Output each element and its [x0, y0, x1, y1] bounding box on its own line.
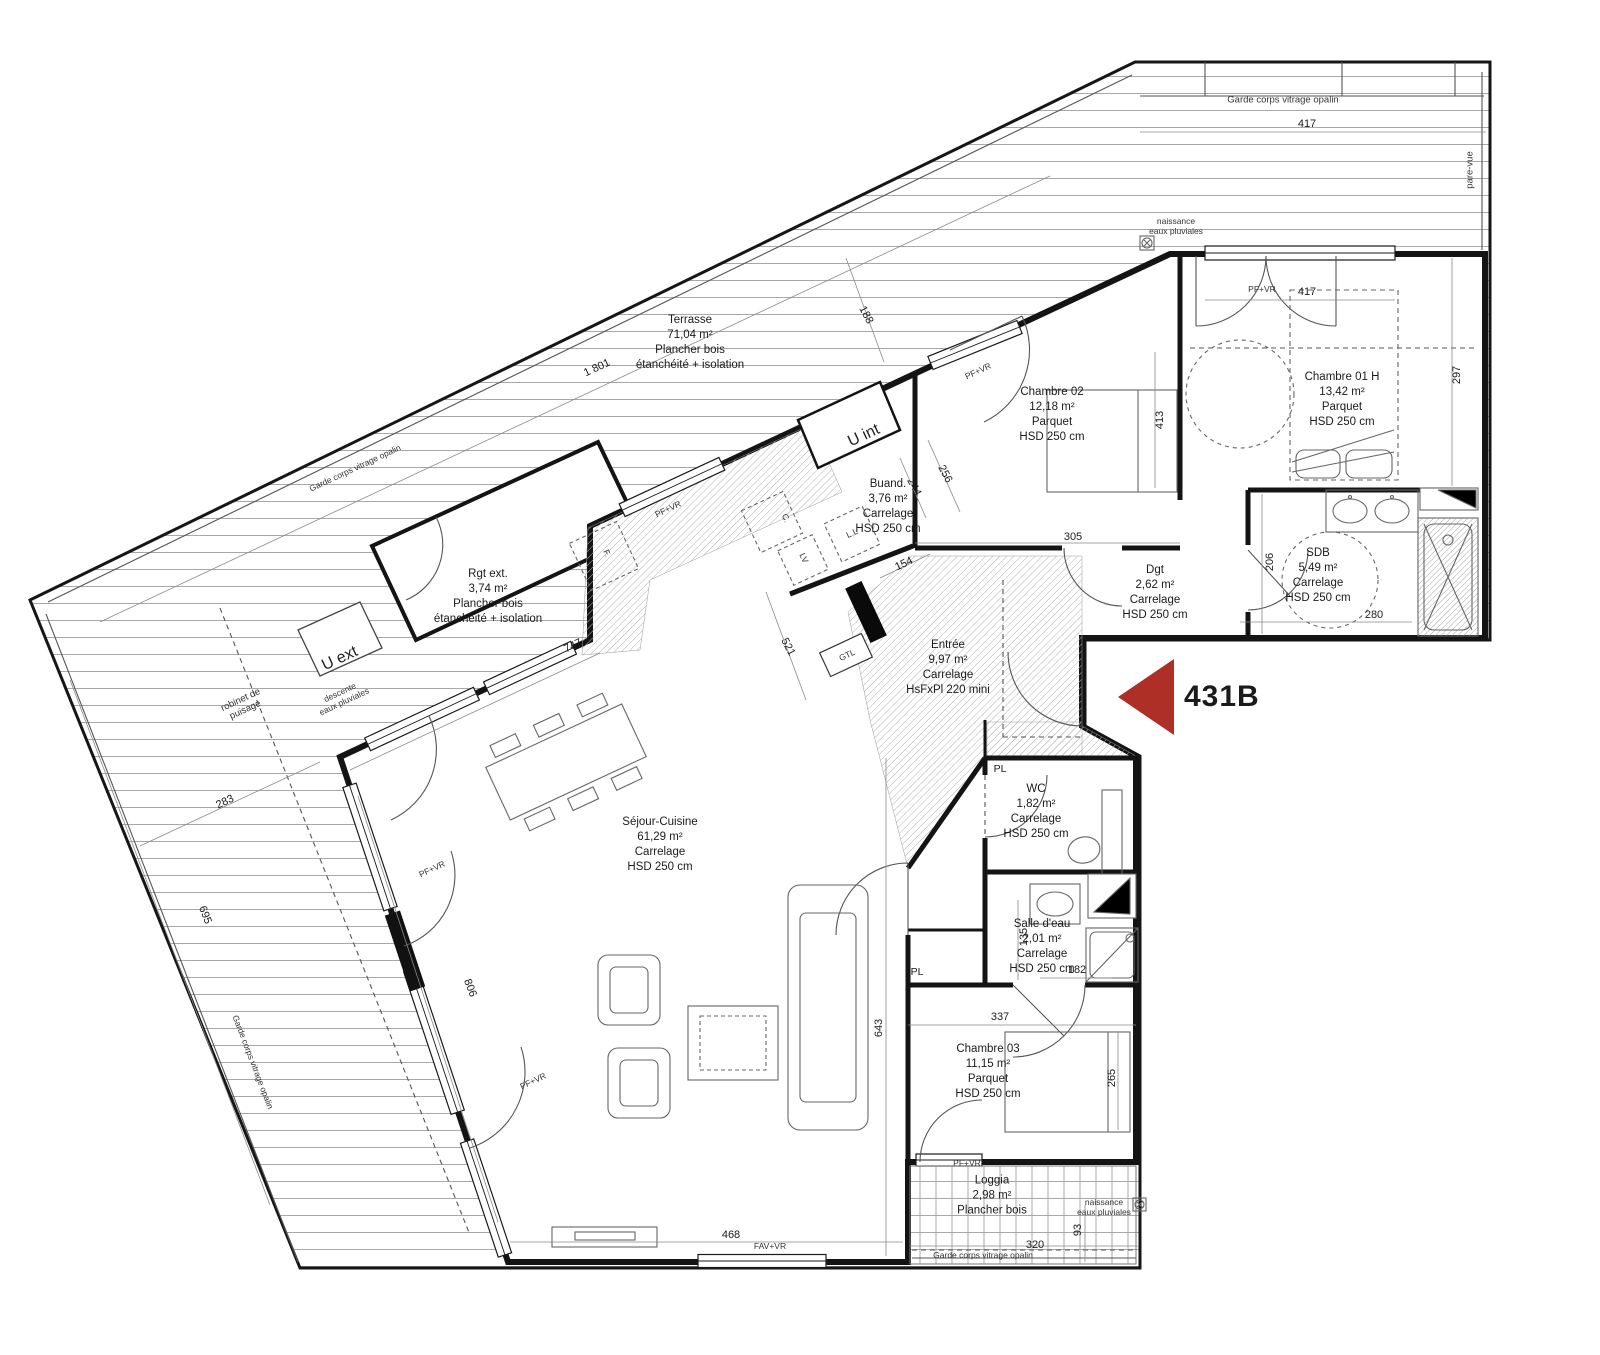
room-floor: Carrelage — [1122, 593, 1187, 608]
room-area: 11,15 m² — [955, 1057, 1020, 1072]
room-area: 61,29 m² — [622, 830, 697, 845]
room-note: HSD 250 cm — [1285, 591, 1350, 606]
room-area: 5,49 m² — [1285, 561, 1350, 576]
unit-marker-arrow — [1118, 659, 1174, 735]
dim-ch02-width: 305 — [1064, 531, 1082, 543]
room-label-salle-deau: Salle d'eau 2,01 m² Carrelage HSD 250 cm — [1009, 917, 1074, 977]
room-note: HSD 250 cm — [1003, 827, 1068, 842]
room-label-chambre01: Chambre 01 H 13,42 m² Parquet HSD 250 cm — [1305, 370, 1380, 430]
room-note: HSD 250 cm — [1009, 962, 1074, 977]
room-label-terrasse: Terrasse 71,04 m² Plancher bois étanchéi… — [636, 313, 744, 373]
room-note: HSD 250 cm — [1305, 415, 1380, 430]
room-floor: Plancher bois — [957, 1203, 1027, 1218]
room-name: Chambre 01 H — [1305, 370, 1380, 385]
room-floor: Parquet — [1305, 400, 1380, 415]
room-floor: Plancher bois — [434, 597, 542, 612]
room-area: 2,62 m² — [1122, 578, 1187, 593]
dim-loggia-d: 93 — [1072, 1224, 1084, 1236]
room-note: HSD 250 cm — [1122, 608, 1187, 623]
rainwater-inlet-label-top: naissance eaux pluviales — [1149, 216, 1203, 236]
dim-sejour-e: 643 — [873, 1019, 885, 1037]
room-floor: Carrelage — [1285, 576, 1350, 591]
dim-sdb-depth: 206 — [1264, 553, 1276, 571]
dim-ch01-depth: 297 — [1451, 366, 1463, 384]
dim-ch03-depth: 265 — [1106, 1069, 1118, 1087]
room-label-sdb: SDB 5,49 m² Carrelage HSD 250 cm — [1285, 546, 1350, 606]
room-note: étanchéité + isolation — [636, 358, 744, 373]
room-floor: Carrelage — [1003, 812, 1068, 827]
room-name: Chambre 03 — [955, 1042, 1020, 1057]
room-note: HSD 250 cm — [622, 860, 697, 875]
room-name: Terrasse — [636, 313, 744, 328]
dim-ch03-width: 337 — [991, 1011, 1009, 1023]
dim-terrace-rail: 417 — [1298, 118, 1316, 130]
room-floor: Parquet — [955, 1072, 1020, 1087]
room-floor: Carrelage — [622, 845, 697, 860]
guardrail-label-loggia: Garde corps vitrage opalin — [933, 1250, 1033, 1260]
room-note: HSD 250 cm — [955, 1087, 1020, 1102]
room-note: HsFxPl 220 mini — [906, 683, 990, 698]
room-note: HSD 250 cm — [855, 522, 920, 537]
room-label-chambre02: Chambre 02 12,18 m² Parquet HSD 250 cm — [1019, 385, 1084, 445]
room-label-sejour: Séjour-Cuisine 61,29 m² Carrelage HSD 25… — [622, 815, 697, 875]
dim-ch02-depth: 413 — [1154, 411, 1166, 429]
rainwater-inlet-label-loggia: naissance eaux pluviales — [1077, 1197, 1131, 1217]
privacy-screen-label: pare-vue — [1465, 151, 1476, 189]
dim-sde-l: 182 — [1068, 964, 1086, 976]
room-name: SDB — [1285, 546, 1350, 561]
room-area: 13,42 m² — [1305, 385, 1380, 400]
room-name: Rgt ext. — [434, 567, 542, 582]
closet-label-entree: PL — [994, 763, 1007, 775]
dim-sejour-s: 468 — [722, 1229, 740, 1241]
guardrail-label-top: Garde corps vitrage opalin — [1227, 95, 1338, 106]
room-area: 9,97 m² — [906, 653, 990, 668]
room-floor: Carrelage — [855, 507, 920, 522]
room-note: HSD 250 cm — [1019, 430, 1084, 445]
room-name: WC — [1003, 782, 1068, 797]
room-area: 1,82 m² — [1003, 797, 1068, 812]
room-label-loggia: Loggia 2,98 m² Plancher bois — [957, 1174, 1027, 1219]
dim-sde-w: 135 — [1018, 928, 1030, 946]
room-name: Chambre 02 — [1019, 385, 1084, 400]
room-label-dgt: Dgt 2,62 m² Carrelage HSD 250 cm — [1122, 563, 1187, 623]
closet-label-sejour: PL — [911, 966, 924, 978]
window-label-pfvr-6: PF+VR — [953, 1158, 981, 1168]
dim-ch01-width: 417 — [1298, 286, 1316, 298]
room-name: Loggia — [957, 1174, 1027, 1189]
room-name: Entrée — [906, 638, 990, 653]
room-floor: Carrelage — [906, 668, 990, 683]
room-note: étanchéité + isolation — [434, 612, 542, 627]
room-label-wc: WC 1,82 m² Carrelage HSD 250 cm — [1003, 782, 1068, 842]
room-area: 12,18 m² — [1019, 400, 1084, 415]
room-label-chambre03: Chambre 03 11,15 m² Parquet HSD 250 cm — [955, 1042, 1020, 1102]
dim-sdb-width: 280 — [1365, 609, 1383, 621]
window-label-favvr: FAV+VR — [754, 1241, 786, 1251]
room-label-rgt-ext: Rgt ext. 3,74 m² Plancher bois étanchéit… — [434, 567, 542, 627]
room-area: 2,98 m² — [957, 1189, 1027, 1204]
unit-number: 431B — [1184, 680, 1260, 714]
window-label-pfvr-2: PF+VR — [1248, 284, 1276, 294]
room-area: 71,04 m² — [636, 328, 744, 343]
room-name: Dgt — [1122, 563, 1187, 578]
room-area: 3,74 m² — [434, 582, 542, 597]
room-floor: Parquet — [1019, 415, 1084, 430]
room-name: Séjour-Cuisine — [622, 815, 697, 830]
floor-plan-drawing — [0, 0, 1600, 1355]
room-label-entree: Entrée 9,97 m² Carrelage HsFxPl 220 mini — [906, 638, 990, 698]
room-floor: Plancher bois — [636, 343, 744, 358]
floor-plan: Terrasse 71,04 m² Plancher bois étanchéi… — [0, 0, 1600, 1355]
room-floor: Carrelage — [1009, 947, 1074, 962]
